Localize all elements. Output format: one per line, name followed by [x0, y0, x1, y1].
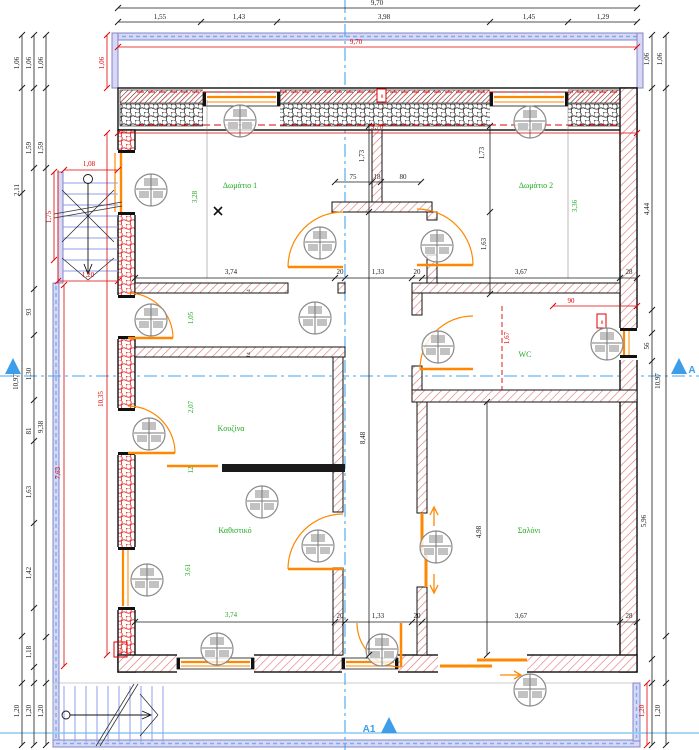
balcony-top	[112, 33, 643, 88]
dimension-text: 1,20	[37, 704, 45, 717]
ceiling-light-icon	[246, 486, 278, 518]
ceiling-light-icon	[422, 331, 454, 363]
ceiling-light-icon	[302, 530, 334, 562]
dimension-text: 1,06	[37, 56, 45, 69]
dimension-text: 1,06	[98, 56, 106, 69]
room-label: Σαλόνι	[518, 526, 541, 535]
ceiling-light-icon	[201, 633, 233, 665]
dimension-text: 75	[350, 173, 358, 181]
arrow-down-icon	[430, 574, 438, 593]
dimension-text: 8	[381, 94, 384, 100]
dimension-text: 1,43	[233, 13, 246, 21]
dimension-text: 1,20	[25, 704, 33, 717]
dimension-text: 1,45	[523, 13, 536, 21]
dimension-text: 1,05	[187, 311, 195, 324]
dimension-text: 56	[643, 342, 651, 350]
dimension-text: 1,08	[83, 160, 96, 168]
dimension-text: 5,96	[640, 514, 648, 527]
dimension-text: 102	[118, 647, 123, 655]
dimension-text: 20	[337, 612, 345, 620]
dimension-text: 80	[400, 173, 408, 181]
wall-right	[619, 88, 638, 672]
dimension-text: 1,20	[82, 271, 95, 279]
cross-mark	[214, 207, 222, 215]
dimension-text: 90	[568, 297, 576, 305]
dimension-text: 4,98	[475, 525, 483, 538]
dimension-text: 14	[246, 352, 252, 358]
dimension-text: 1,73	[358, 149, 366, 162]
interior-walls	[135, 130, 637, 655]
ceiling-light-icon	[133, 418, 165, 450]
wall-left	[115, 130, 137, 672]
dimension-text: 9,70	[350, 38, 363, 46]
dimension-text: 8,48	[359, 431, 367, 444]
floor-plan-canvas: 9,701,551,433,981,451,291,061,061,061,59…	[0, 0, 699, 750]
room-label: Δωμάτιο 2	[519, 181, 553, 190]
dimension-text: 10,97	[654, 373, 662, 389]
terrace-left	[53, 283, 59, 747]
door-opening-hall	[117, 295, 136, 339]
dimension-text: 1,20	[13, 704, 21, 717]
dimension-text: 1,42	[25, 566, 33, 579]
section-arrow-a-right	[671, 358, 687, 374]
ceiling-light-icon	[135, 174, 167, 206]
dimension-text: 1,73	[478, 146, 486, 159]
dimension-text: 7,63	[54, 466, 62, 479]
dimension-text: 1,59	[25, 141, 33, 154]
dimension-text: 12	[187, 466, 195, 474]
ceiling-light-icon	[420, 531, 452, 563]
staircase-bottom	[62, 684, 163, 746]
ceiling-light-icon	[366, 634, 398, 666]
dimension-text: 28	[626, 612, 634, 620]
dimension-text: 3,61	[184, 563, 192, 576]
entry-door-left	[115, 150, 137, 215]
dimension-text: 20	[414, 612, 422, 620]
dimension-text: 1,18	[25, 645, 33, 658]
dimension-text: 1,33	[372, 612, 385, 620]
dimension-text: 18	[374, 173, 382, 181]
dimension-text: 1,55	[154, 13, 167, 21]
dimension-text: 10,97	[12, 374, 20, 390]
dimension-text: 3,67	[515, 612, 528, 620]
dimension-text: 2,07	[187, 400, 195, 413]
ceiling-light-icon	[421, 230, 453, 262]
section-arrow-a1	[381, 717, 397, 733]
arrow-up-icon	[430, 507, 438, 526]
dimension-text: 1,30	[25, 367, 33, 380]
dimension-text: 9,70	[371, 0, 384, 7]
dimension-text: 9,38	[37, 420, 45, 433]
dimension-text: 81	[25, 427, 33, 435]
dimension-text: 1,59	[37, 141, 45, 154]
dimension-text: 1,67	[503, 331, 511, 344]
dimension-text: 3,28	[191, 190, 199, 203]
sliding-door-bottom	[438, 654, 527, 679]
ceiling-light-icon	[304, 227, 336, 259]
dimension-text: 4,44	[643, 202, 651, 215]
dimension-text: 93	[25, 308, 33, 316]
stair-walkline-start	[84, 175, 93, 184]
ceiling-light-icon	[514, 674, 546, 706]
ceiling-light-icon	[591, 328, 623, 360]
dimension-text: 3,74	[225, 268, 238, 276]
ceiling-light-icon	[135, 304, 167, 336]
ceiling-light-icon	[131, 564, 163, 596]
dimension-text: 3,67	[515, 268, 528, 276]
dimension-text: 3,36	[571, 199, 579, 212]
dimension-text: 1,20	[654, 704, 662, 717]
room-label: Κουζίνα	[217, 424, 245, 433]
room-label: Δωμάτιο 1	[223, 181, 257, 190]
dimension-text: 1,06	[656, 52, 664, 65]
dimension-text: 20	[414, 268, 422, 276]
room-label: WC	[519, 350, 532, 359]
dimension-text: 2,11	[13, 184, 21, 196]
dimension-text: 10,35	[97, 391, 105, 407]
dimension-text: 20	[337, 268, 345, 276]
floor-plan-page: 9,701,551,433,981,451,291,061,061,061,59…	[0, 0, 699, 750]
dimension-text: 28	[626, 268, 634, 276]
ceiling-light-icon	[224, 105, 256, 137]
section-arrow-a-left	[5, 358, 21, 374]
dimension-text: 1,06	[13, 56, 21, 69]
dimension-text: 14	[246, 289, 252, 295]
dimension-text: 3,74	[225, 611, 238, 619]
dimension-text: 1,06	[643, 52, 651, 65]
kitchen-counter-wall	[222, 464, 345, 472]
section-marker-label: A	[688, 365, 695, 376]
dimension-text: 3,98	[378, 13, 391, 21]
dimension-text: 1,63	[480, 237, 488, 250]
section-marker-label: A1	[363, 724, 376, 735]
dimension-text: 1,20	[638, 704, 646, 717]
dimension-text: 1,33	[372, 268, 385, 276]
ceiling-light-icon	[299, 302, 331, 334]
room-label: Καθιστικό	[218, 526, 251, 535]
dimension-text: 9,70	[371, 123, 384, 131]
dimension-text: 1,06	[25, 56, 33, 69]
dimension-text: 1,29	[597, 13, 610, 21]
dimension-text: 1,75	[45, 210, 53, 223]
dimension-text: 1,63	[25, 485, 33, 498]
staircase-top	[54, 170, 122, 283]
dimension-text: 8	[601, 320, 604, 326]
